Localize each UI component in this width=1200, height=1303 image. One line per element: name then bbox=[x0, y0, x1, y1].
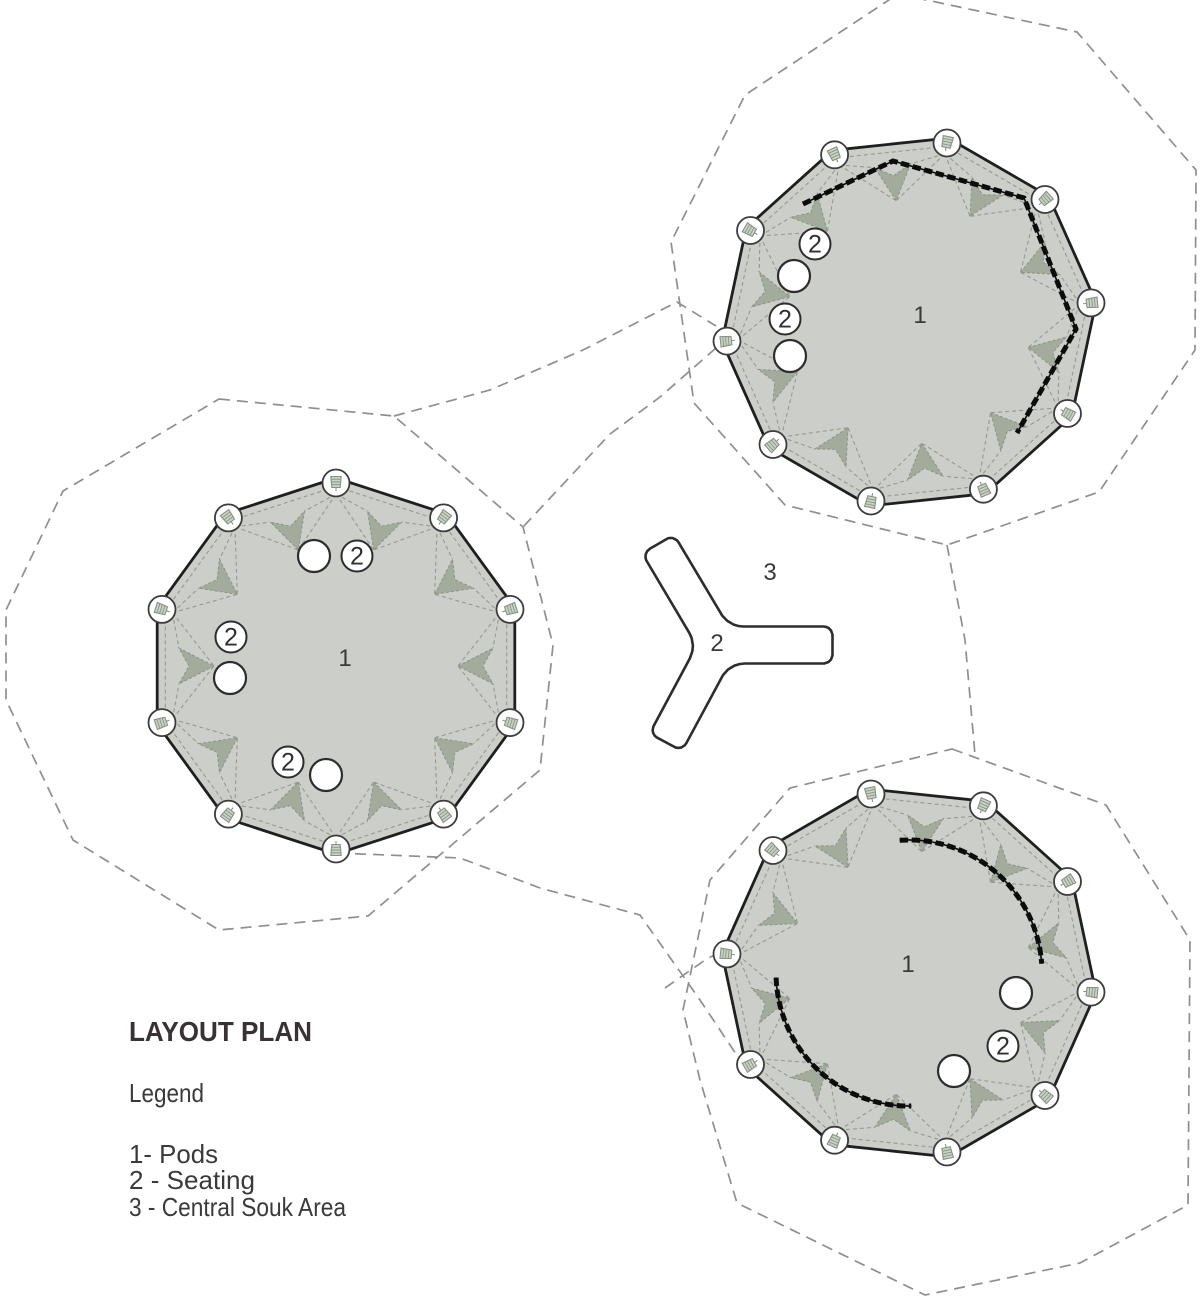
svg-text:1: 1 bbox=[901, 951, 914, 978]
svg-text:2: 2 bbox=[996, 1033, 1010, 1061]
svg-text:3 - Central Souk Area: 3 - Central Souk Area bbox=[129, 1192, 346, 1222]
svg-text:2: 2 bbox=[281, 749, 295, 777]
svg-text:2: 2 bbox=[778, 306, 792, 334]
svg-text:3: 3 bbox=[763, 559, 776, 586]
svg-text:1: 1 bbox=[338, 645, 351, 672]
svg-text:2: 2 bbox=[224, 624, 238, 652]
svg-text:2 - Seating: 2 - Seating bbox=[129, 1165, 255, 1195]
svg-text:LAYOUT PLAN: LAYOUT PLAN bbox=[129, 1016, 312, 1047]
svg-text:2: 2 bbox=[808, 231, 822, 259]
svg-text:2: 2 bbox=[710, 630, 723, 657]
svg-text:Legend: Legend bbox=[129, 1078, 204, 1108]
svg-text:2: 2 bbox=[350, 543, 364, 571]
svg-text:1: 1 bbox=[913, 302, 926, 329]
